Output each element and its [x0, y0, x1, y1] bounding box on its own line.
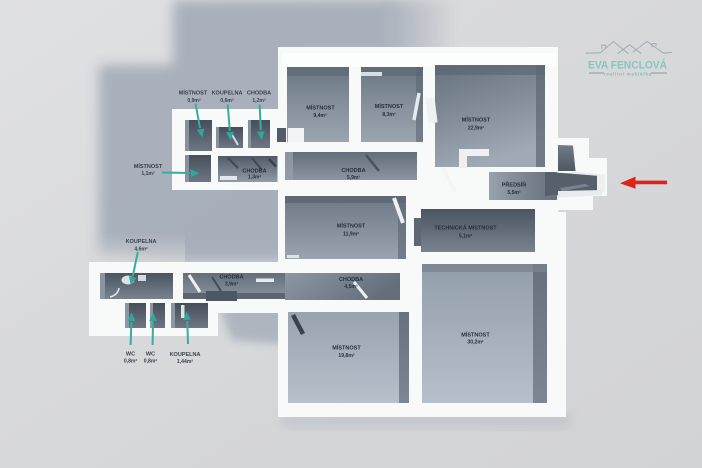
- svg-text:WC: WC: [126, 352, 135, 358]
- svg-text:MÍSTNOST: MÍSTNOST: [462, 116, 491, 124]
- svg-text:CHODBA: CHODBA: [219, 275, 243, 281]
- svg-text:19,8m²: 19,8m²: [338, 353, 354, 359]
- svg-text:KOUPELNA: KOUPELNA: [170, 352, 201, 358]
- svg-text:1,3m²: 1,3m²: [248, 175, 262, 181]
- svg-text:CHODBA: CHODBA: [247, 91, 271, 97]
- svg-text:KOUPELNA: KOUPELNA: [126, 239, 157, 245]
- svg-text:MÍSTNOST: MÍSTNOST: [375, 102, 404, 110]
- svg-text:KOUPELNA: KOUPELNA: [212, 91, 243, 97]
- svg-text:5,9m²: 5,9m²: [347, 175, 361, 181]
- svg-text:4,6m²: 4,6m²: [134, 247, 148, 253]
- svg-text:1,44m²: 1,44m²: [177, 359, 193, 365]
- svg-text:1,1m²: 1,1m²: [141, 171, 155, 177]
- svg-text:MÍSTNOST: MÍSTNOST: [332, 344, 361, 352]
- svg-text:3,9m²: 3,9m²: [225, 282, 239, 288]
- svg-text:4,5m²: 4,5m²: [344, 284, 358, 290]
- svg-text:PŘEDSÍŇ: PŘEDSÍŇ: [502, 181, 526, 189]
- svg-text:22,9m²: 22,9m²: [468, 126, 484, 132]
- svg-text:CHODBA: CHODBA: [339, 277, 363, 283]
- svg-text:MÍSTNOST: MÍSTNOST: [179, 89, 208, 97]
- svg-text:MÍSTNOST: MÍSTNOST: [306, 104, 335, 112]
- svg-text:MÍSTNOST: MÍSTNOST: [337, 222, 366, 230]
- svg-text:5,1m²: 5,1m²: [459, 234, 473, 240]
- svg-text:0,8m²: 0,8m²: [124, 359, 138, 365]
- svg-text:TECHNICKÁ MÍSTNOST: TECHNICKÁ MÍSTNOST: [434, 224, 497, 232]
- svg-text:0,6m²: 0,6m²: [220, 98, 234, 104]
- svg-text:30,2m²: 30,2m²: [467, 340, 483, 346]
- svg-text:11,9m²: 11,9m²: [343, 232, 359, 238]
- svg-text:8,3m²: 8,3m²: [382, 112, 396, 118]
- svg-text:WC: WC: [146, 352, 155, 358]
- svg-text:9,4m²: 9,4m²: [313, 113, 327, 119]
- svg-text:EVA FENCLOVÁ: EVA FENCLOVÁ: [588, 58, 667, 71]
- svg-text:1,2m²: 1,2m²: [252, 98, 266, 104]
- svg-text:MÍSTNOST: MÍSTNOST: [461, 331, 490, 339]
- svg-text:CHODBA: CHODBA: [341, 168, 365, 174]
- svg-text:0,8m²: 0,8m²: [144, 359, 158, 365]
- svg-text:MÍSTNOST: MÍSTNOST: [134, 162, 163, 170]
- svg-text:5,5m²: 5,5m²: [507, 190, 521, 196]
- svg-text:0,9m²: 0,9m²: [187, 98, 201, 104]
- svg-text:realitní makléřka: realitní makléřka: [604, 72, 652, 77]
